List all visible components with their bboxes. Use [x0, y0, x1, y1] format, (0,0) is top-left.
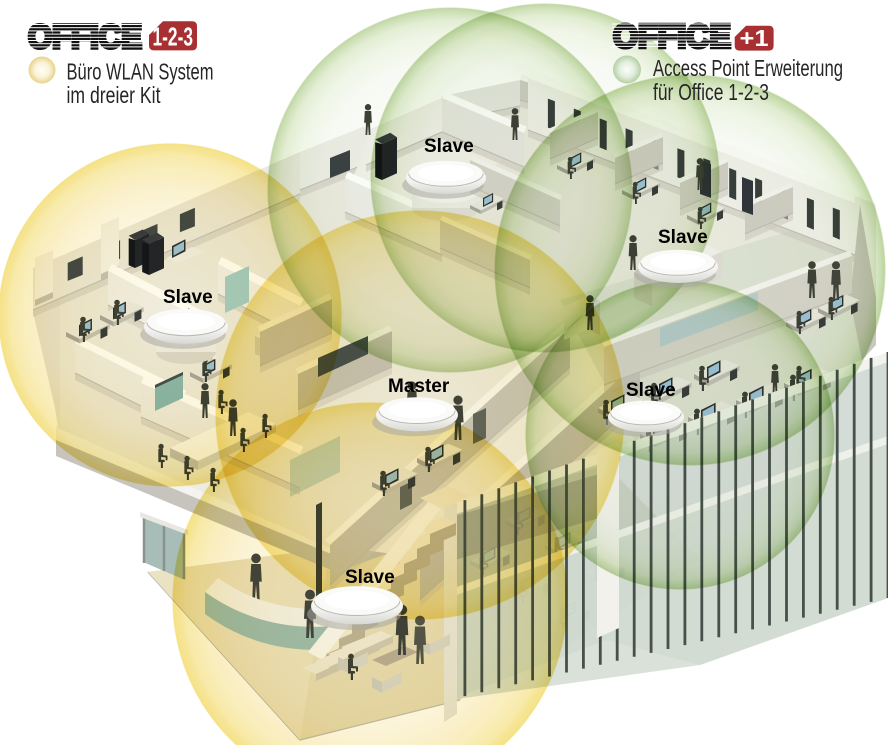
svg-text:im dreier Kit: im dreier Kit — [67, 82, 161, 108]
svg-text:1-2-3: 1-2-3 — [153, 22, 194, 52]
svg-text:Slave: Slave — [658, 227, 708, 248]
svg-text:Büro WLAN System: Büro WLAN System — [67, 59, 214, 85]
svg-text:Slave: Slave — [626, 380, 676, 401]
svg-text:Slave: Slave — [424, 136, 474, 157]
svg-text:OFFICE: OFFICE — [613, 18, 731, 55]
svg-text:Access Point Erweiterung: Access Point Erweiterung — [653, 55, 843, 81]
svg-text:für Office 1-2-3: für Office 1-2-3 — [653, 79, 769, 105]
svg-text:Master: Master — [388, 376, 450, 397]
svg-text:Slave: Slave — [163, 287, 213, 308]
svg-text:OFFICE: OFFICE — [28, 18, 142, 55]
svg-text:Slave: Slave — [345, 567, 395, 588]
svg-text:+1: +1 — [740, 25, 769, 51]
